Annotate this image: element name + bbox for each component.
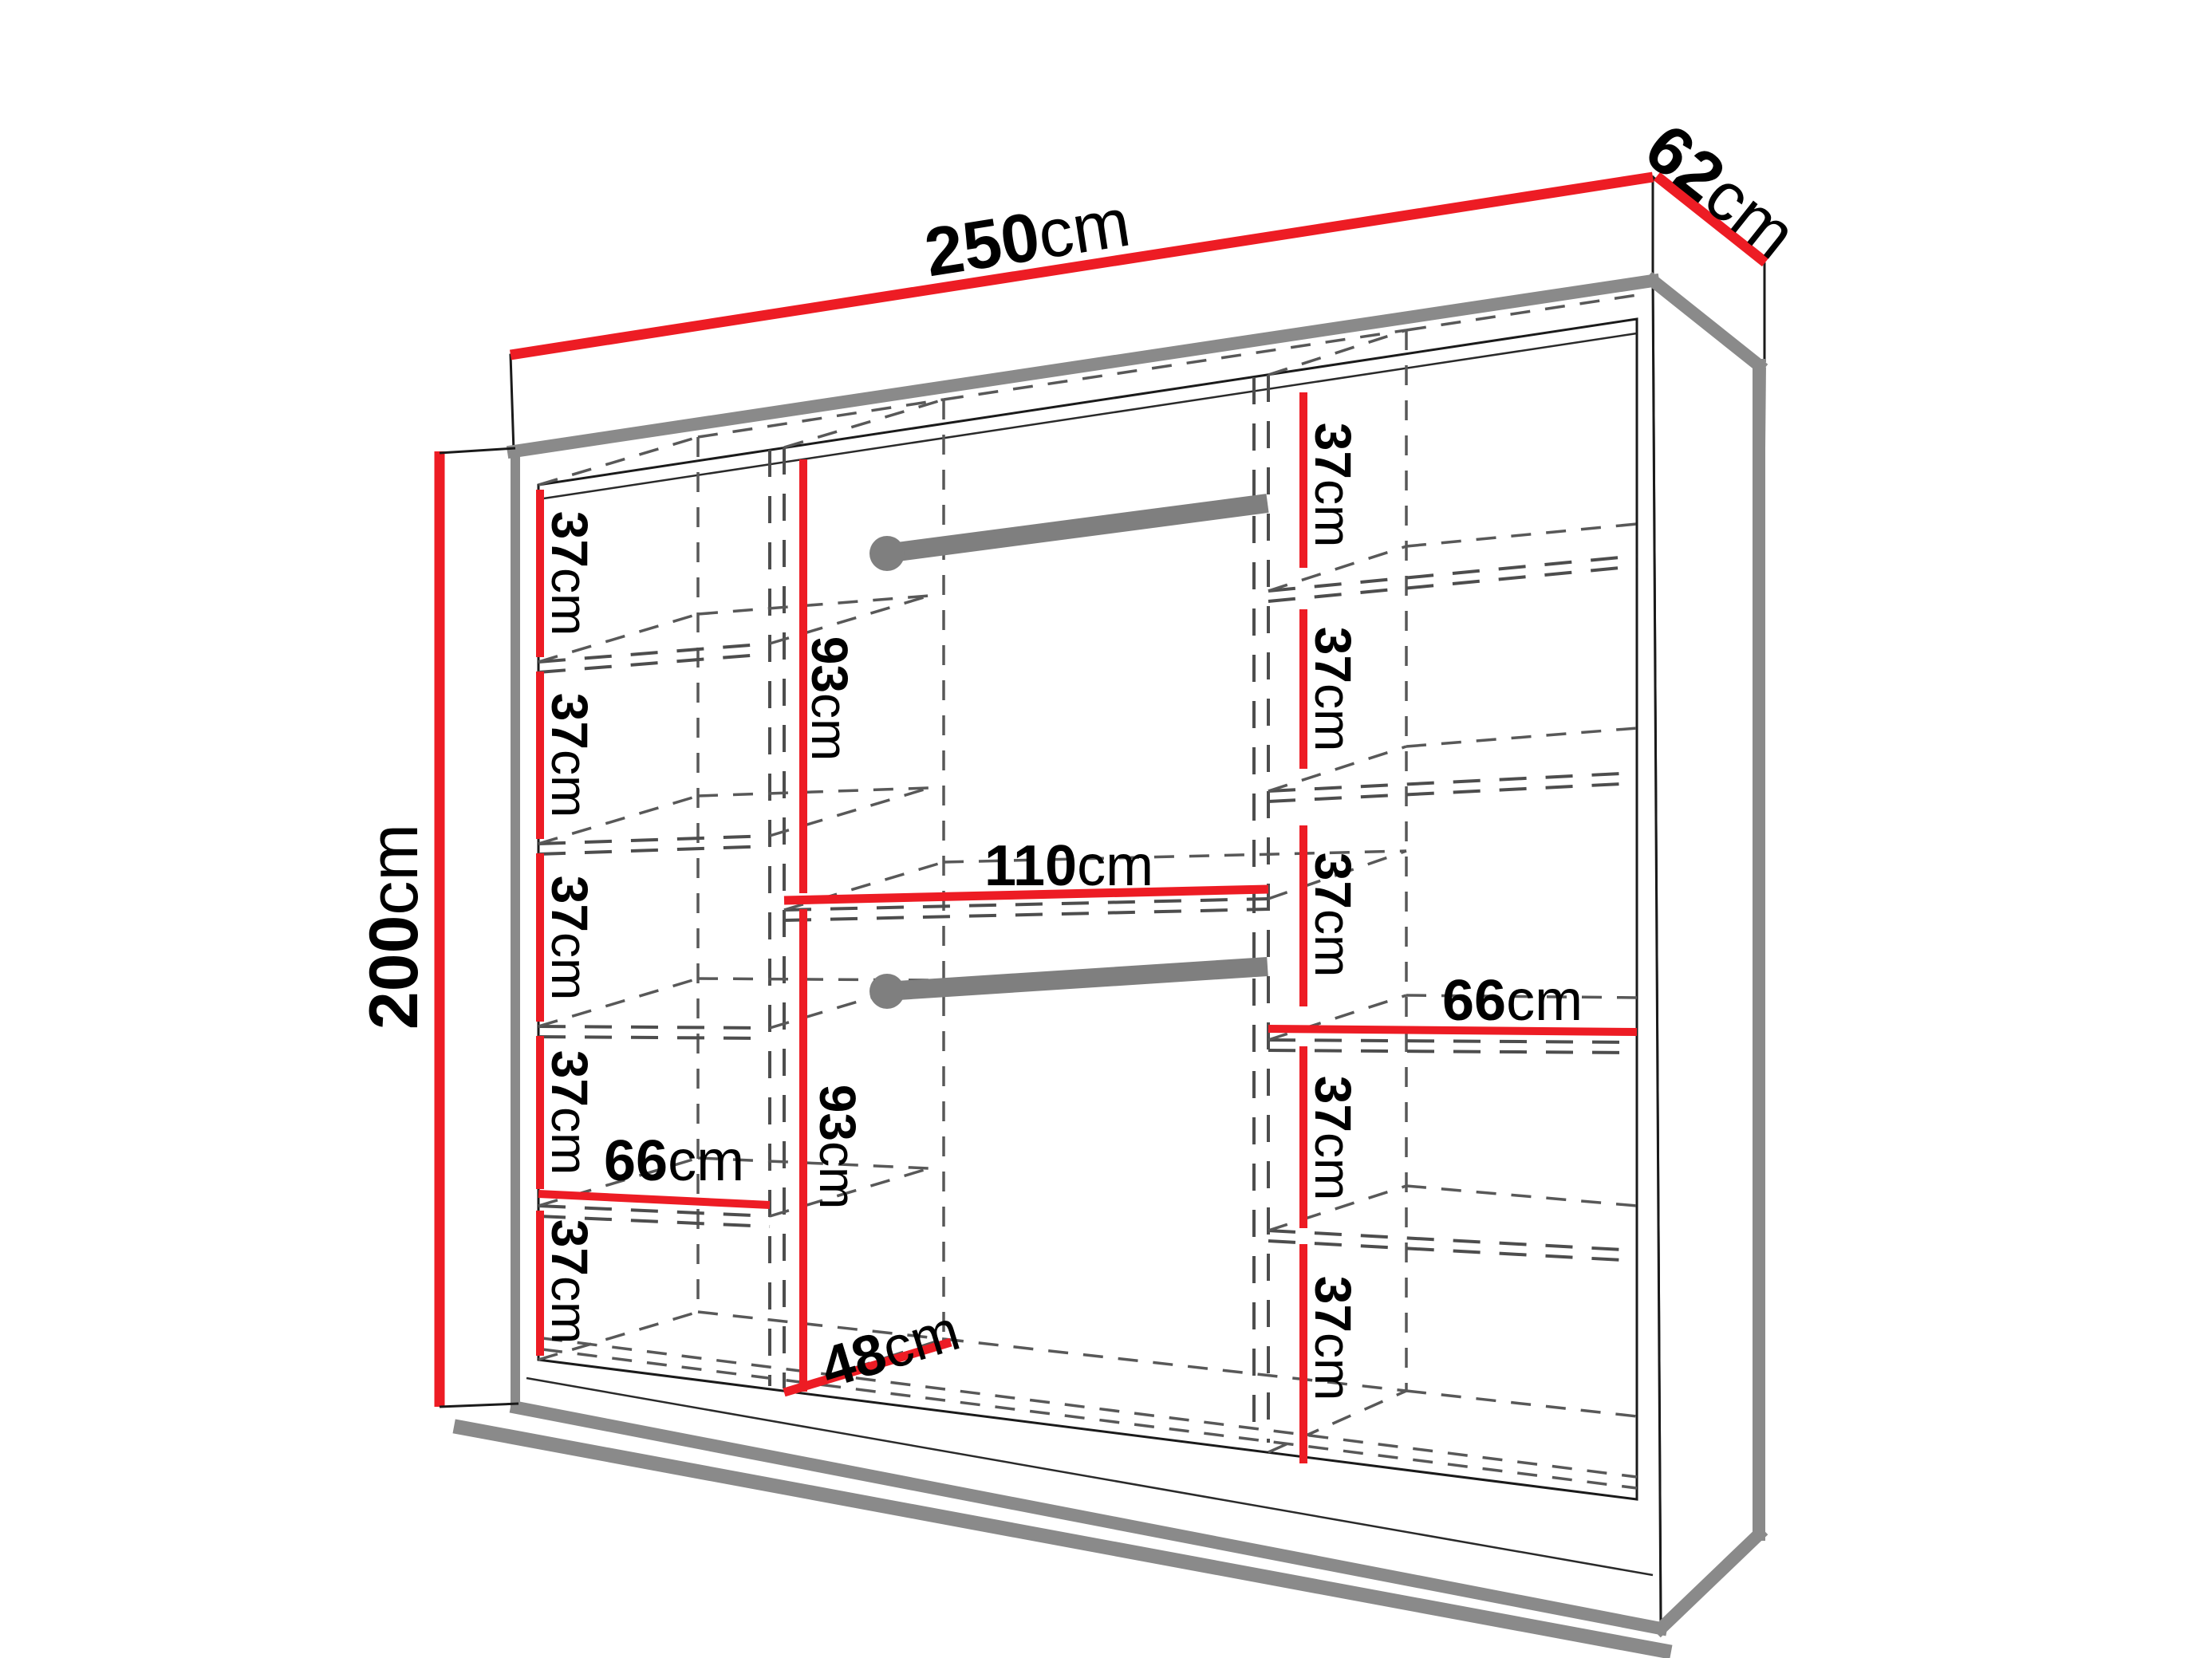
label-left-gap2: 37cm — [541, 693, 598, 818]
wardrobe-diagram: 250cm 62cm 200cm 37cm 37cm 37cm 37cm 37c… — [0, 0, 2212, 1658]
hanging-rail-upper-cap — [869, 536, 905, 571]
interior-opening — [538, 319, 1637, 1499]
label-right-gap3: 37cm — [1304, 853, 1362, 978]
dim-connector-bottom — [440, 1404, 518, 1407]
label-left-gap3: 37cm — [541, 876, 598, 1001]
label-left-gap5: 37cm — [541, 1219, 598, 1345]
diagram-stage: 250cm 62cm 200cm 37cm 37cm 37cm 37cm 37c… — [0, 0, 2212, 1658]
right-side-face — [1653, 281, 1764, 1628]
label-left-gap4: 37cm — [541, 1050, 598, 1176]
hanging-rail-lower-cap — [869, 974, 905, 1009]
label-right-gap4: 37cm — [1304, 1076, 1362, 1201]
label-middle-upper-height: 93cm — [801, 636, 858, 762]
label-left-gap1: 37cm — [541, 511, 598, 636]
label-right-gap1: 37cm — [1304, 423, 1362, 548]
label-right-shelf-width: 66cm — [1442, 969, 1583, 1033]
label-right-gap2: 37cm — [1304, 627, 1362, 752]
label-overall-height: 200cm — [356, 824, 432, 1030]
label-middle-lower-height: 93cm — [809, 1085, 866, 1210]
label-left-shelf-width: 66cm — [604, 1129, 744, 1193]
dim-connector-top — [440, 448, 515, 453]
label-middle-width: 110cm — [984, 834, 1153, 898]
label-right-gap5: 37cm — [1304, 1276, 1362, 1401]
